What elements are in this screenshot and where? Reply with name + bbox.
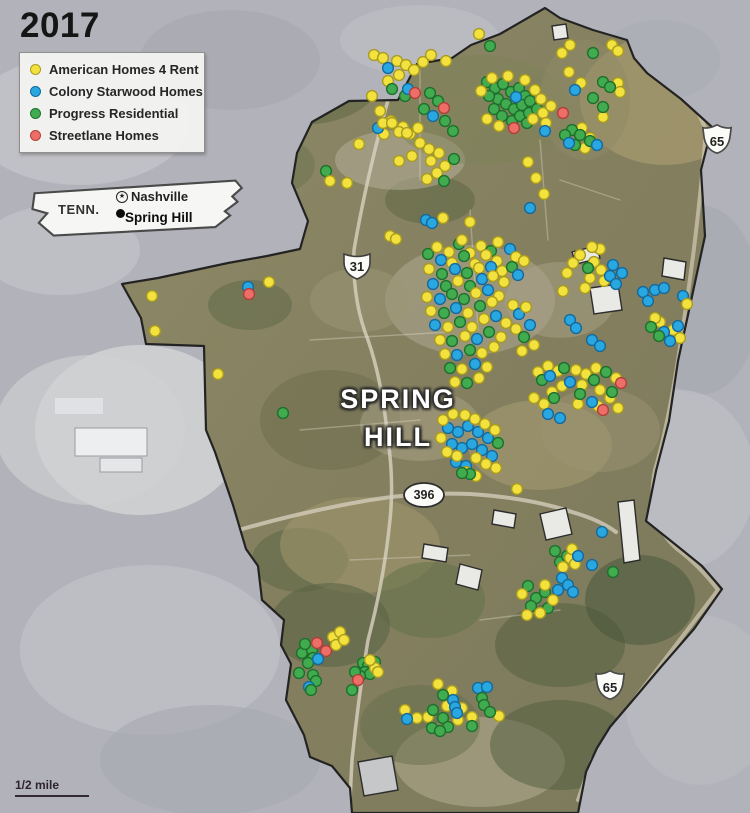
home-dot	[553, 585, 564, 596]
home-dot	[583, 263, 594, 274]
home-dot	[490, 425, 501, 436]
legend-label: Progress Residential	[49, 106, 178, 121]
home-dot	[434, 148, 445, 159]
home-dot	[570, 85, 581, 96]
home-dot	[491, 463, 502, 474]
home-dot	[575, 130, 586, 141]
home-dot	[654, 331, 665, 342]
home-dot	[424, 144, 435, 155]
home-dot	[480, 419, 491, 430]
spring-hill-map-label: SPRING HILL	[318, 380, 478, 456]
legend-label: American Homes 4 Rent	[49, 62, 199, 77]
home-dot	[519, 256, 530, 267]
home-dot	[512, 484, 523, 495]
home-dot	[511, 92, 522, 103]
home-dot	[312, 638, 323, 649]
home-dot	[646, 322, 657, 333]
home-dot	[303, 658, 314, 669]
home-dot	[451, 303, 462, 314]
home-dot	[294, 668, 305, 679]
home-dot	[607, 387, 618, 398]
home-dot	[493, 237, 504, 248]
home-dot	[488, 271, 499, 282]
home-dot	[278, 408, 289, 419]
home-dot	[531, 173, 542, 184]
home-dot	[402, 714, 413, 725]
map-graphic: 2017 American Homes 4 Rent Colony Starwo…	[0, 0, 750, 813]
home-dot	[611, 279, 622, 290]
home-dot	[460, 331, 471, 342]
home-dot	[402, 128, 413, 139]
home-dot	[489, 342, 500, 353]
home-dot	[422, 292, 433, 303]
home-dot	[407, 151, 418, 162]
home-dot	[452, 708, 463, 719]
home-dot	[452, 350, 463, 361]
nashville-star-icon: ★	[116, 191, 128, 203]
legend-label: Colony Starwood Homes	[49, 84, 203, 99]
legend: American Homes 4 Rent Colony Starwood Ho…	[19, 52, 205, 153]
home-dot	[378, 53, 389, 64]
home-dot	[428, 279, 439, 290]
home-dot	[555, 413, 566, 424]
home-dot	[445, 363, 456, 374]
i65-route-shield-north: 65	[700, 122, 734, 156]
home-dot	[339, 635, 350, 646]
home-dot	[496, 332, 507, 343]
home-dot	[448, 126, 459, 137]
home-dot	[598, 112, 609, 123]
home-dot	[682, 299, 693, 310]
home-dot	[435, 335, 446, 346]
home-dot	[484, 327, 495, 338]
home-dot	[482, 682, 493, 693]
place-label-line1: SPRING	[318, 380, 478, 418]
home-dot	[365, 655, 376, 666]
home-dot	[589, 375, 600, 386]
home-dot	[474, 263, 485, 274]
spring-hill-inset-label: Spring Hill	[125, 210, 193, 225]
home-dot	[665, 336, 676, 347]
home-dot	[471, 288, 482, 299]
home-dot	[591, 363, 602, 374]
home-dot	[373, 667, 384, 678]
home-dot	[443, 322, 454, 333]
home-dot	[557, 48, 568, 59]
home-dot	[608, 260, 619, 271]
home-dot	[525, 320, 536, 331]
red-dot-icon	[30, 130, 41, 141]
home-dot	[244, 289, 255, 300]
home-dot	[585, 273, 596, 284]
home-dot	[558, 562, 569, 573]
home-dot	[313, 654, 324, 665]
home-dot	[394, 70, 405, 81]
legend-item-american-homes: American Homes 4 Rent	[30, 62, 194, 77]
home-dot	[509, 123, 520, 134]
home-dot	[673, 321, 684, 332]
home-dot	[463, 308, 474, 319]
home-dot	[559, 363, 570, 374]
home-dot	[549, 393, 560, 404]
home-dot	[573, 399, 584, 410]
home-dot	[462, 268, 473, 279]
home-dot	[499, 277, 510, 288]
home-dot	[465, 345, 476, 356]
home-dot	[391, 234, 402, 245]
legend-item-progress-residential: Progress Residential	[30, 106, 194, 121]
home-dot	[501, 318, 512, 329]
home-dot	[481, 459, 492, 470]
home-dot	[494, 121, 505, 132]
home-dot	[587, 397, 598, 408]
home-dot	[539, 399, 550, 410]
home-dot	[367, 91, 378, 102]
home-dot	[437, 269, 448, 280]
home-dot	[435, 726, 446, 737]
home-dot	[457, 468, 468, 479]
home-dot	[615, 87, 626, 98]
home-dot	[571, 365, 582, 376]
home-dot	[517, 346, 528, 357]
home-dot	[562, 268, 573, 279]
home-dot	[487, 297, 498, 308]
home-dot	[675, 333, 686, 344]
home-dot	[264, 277, 275, 288]
us31-route-shield: 31	[340, 249, 374, 281]
home-dot	[529, 393, 540, 404]
home-dot	[449, 154, 460, 165]
shield-number: 31	[340, 249, 374, 282]
home-dot	[595, 385, 606, 396]
home-dot	[476, 86, 487, 97]
home-dot	[539, 189, 550, 200]
home-dot	[545, 371, 556, 382]
home-dot	[580, 283, 591, 294]
home-dot	[475, 301, 486, 312]
home-dot	[592, 140, 603, 151]
home-dot	[513, 270, 524, 281]
home-dot	[453, 276, 464, 287]
home-dot	[568, 587, 579, 598]
home-dot	[483, 285, 494, 296]
state-label: TENN.	[58, 202, 100, 217]
home-dot	[426, 50, 437, 61]
home-dot	[441, 56, 452, 67]
home-dot	[306, 685, 317, 696]
home-dot	[521, 302, 532, 313]
home-dot	[428, 111, 439, 122]
home-dot	[422, 174, 433, 185]
home-dot	[467, 322, 478, 333]
home-dot	[419, 104, 430, 115]
home-dot	[548, 595, 559, 606]
home-dot	[550, 546, 561, 557]
home-dot	[522, 610, 533, 621]
home-dot	[517, 589, 528, 600]
home-dot	[455, 317, 466, 328]
spring-hill-dot-icon	[116, 209, 125, 218]
place-label-line2: HILL	[318, 418, 478, 456]
home-dot	[613, 46, 624, 57]
i65-route-shield-south: 65	[593, 668, 627, 702]
home-dot	[383, 63, 394, 74]
shield-number: 396	[402, 481, 446, 509]
home-dot	[540, 580, 551, 591]
home-dot	[543, 361, 554, 372]
home-dot	[497, 111, 508, 122]
home-dot	[459, 294, 470, 305]
home-dot	[485, 41, 496, 52]
home-dot	[465, 217, 476, 228]
home-dot	[482, 114, 493, 125]
shield-number: 65	[593, 668, 627, 704]
home-dot	[503, 71, 514, 82]
scale-line	[15, 795, 89, 797]
home-dot	[535, 608, 546, 619]
home-dot	[433, 679, 444, 690]
home-dot	[587, 560, 598, 571]
legend-item-streetlane: Streetlane Homes	[30, 128, 194, 143]
home-dot	[413, 123, 424, 134]
home-dot	[565, 377, 576, 388]
home-dot	[470, 359, 481, 370]
home-dot	[409, 65, 420, 76]
home-dot	[147, 291, 158, 302]
home-dot	[467, 721, 478, 732]
home-dot	[457, 364, 468, 375]
home-dot	[608, 567, 619, 578]
home-dot	[412, 713, 423, 724]
home-dot	[540, 126, 551, 137]
yellow-dot-icon	[30, 64, 41, 75]
legend-label: Streetlane Homes	[49, 128, 159, 143]
shield-number: 65	[700, 122, 734, 158]
home-dot	[427, 218, 438, 229]
home-dot	[564, 138, 575, 149]
home-dot	[525, 203, 536, 214]
home-dot	[472, 334, 483, 345]
home-dot	[213, 369, 224, 380]
home-dot	[426, 306, 437, 317]
home-dot	[430, 320, 441, 331]
green-dot-icon	[30, 108, 41, 119]
home-dot	[436, 255, 447, 266]
home-dot	[423, 249, 434, 260]
home-dot	[605, 82, 616, 93]
scale-label: 1/2 mile	[15, 778, 95, 792]
home-dot	[575, 389, 586, 400]
home-dot	[474, 29, 485, 40]
home-dot	[450, 264, 461, 275]
home-dot	[457, 235, 468, 246]
home-dot	[439, 176, 450, 187]
home-dot	[342, 178, 353, 189]
home-dot	[375, 106, 386, 117]
home-dot	[588, 48, 599, 59]
home-dot	[601, 367, 612, 378]
home-dot	[347, 685, 358, 696]
home-dot	[543, 409, 554, 420]
home-dot	[439, 308, 450, 319]
sr396-route-shield: 396	[402, 481, 446, 509]
home-dot	[459, 251, 470, 262]
home-dot	[387, 84, 398, 95]
home-dot	[575, 250, 586, 261]
home-dot	[321, 166, 332, 177]
home-dot	[587, 242, 598, 253]
home-dot	[410, 88, 421, 99]
home-dot	[438, 213, 449, 224]
home-dot	[150, 326, 161, 337]
home-dot	[528, 114, 539, 125]
home-dot	[573, 551, 584, 562]
home-dot	[438, 690, 449, 701]
home-dot	[536, 94, 547, 105]
home-dot	[481, 250, 492, 261]
home-dot	[564, 67, 575, 78]
home-dot	[394, 156, 405, 167]
home-dot	[440, 116, 451, 127]
home-dot	[485, 707, 496, 718]
home-dot	[659, 283, 670, 294]
home-dot	[482, 362, 493, 373]
home-dot	[479, 314, 490, 325]
home-dot	[424, 264, 435, 275]
home-dot	[588, 93, 599, 104]
home-dot	[439, 103, 450, 114]
home-dot	[613, 403, 624, 414]
home-dot	[354, 139, 365, 150]
home-dot	[558, 108, 569, 119]
home-dot	[520, 75, 531, 86]
home-dot	[477, 348, 488, 359]
home-dot	[387, 118, 398, 129]
home-dot	[529, 340, 540, 351]
home-dot	[558, 286, 569, 297]
home-dot	[493, 438, 504, 449]
home-dot	[523, 157, 534, 168]
home-dot	[300, 639, 311, 650]
home-dot	[597, 527, 608, 538]
home-dot	[519, 332, 530, 343]
home-dot	[432, 242, 443, 253]
home-dot	[617, 268, 628, 279]
tennessee-inset: TENN. ★ Nashville Spring Hill	[24, 172, 246, 246]
home-dot	[435, 294, 446, 305]
home-dot	[546, 101, 557, 112]
home-dot	[598, 102, 609, 113]
home-dot	[447, 336, 458, 347]
home-dot	[447, 289, 458, 300]
home-dot	[487, 73, 498, 84]
home-dot	[643, 296, 654, 307]
home-dot	[428, 705, 439, 716]
home-dot	[477, 274, 488, 285]
legend-item-colony-starwood: Colony Starwood Homes	[30, 84, 194, 99]
home-dot	[616, 378, 627, 389]
home-dot	[353, 675, 364, 686]
home-dot	[440, 349, 451, 360]
home-dot	[595, 341, 606, 352]
home-dot	[598, 405, 609, 416]
nashville-label: Nashville	[131, 189, 188, 204]
home-dot	[571, 323, 582, 334]
page-title: 2017	[20, 6, 100, 46]
home-dot	[491, 311, 502, 322]
scale-bar: 1/2 mile	[15, 778, 95, 797]
home-dot	[325, 176, 336, 187]
blue-dot-icon	[30, 86, 41, 97]
